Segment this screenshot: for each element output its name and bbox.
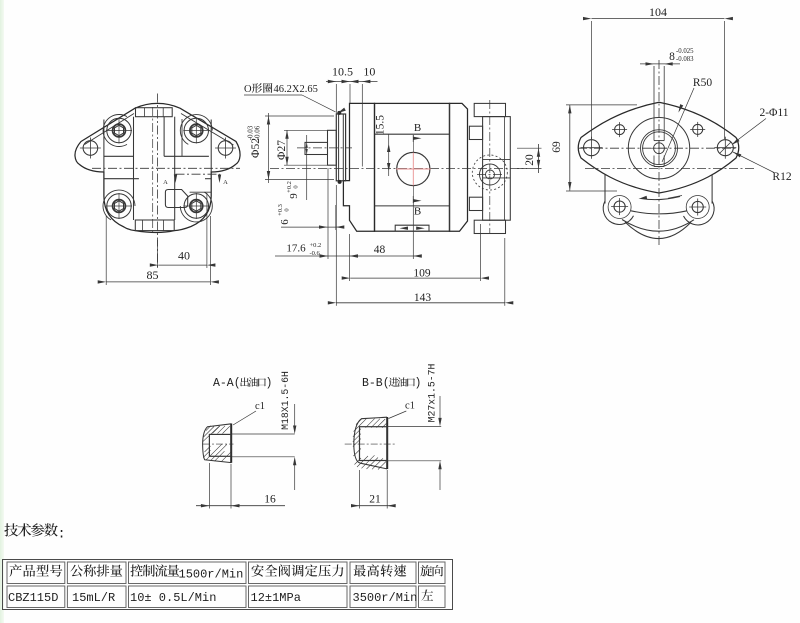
svg-text:M27x1.5-7H: M27x1.5-7H: [427, 363, 438, 422]
svg-text:2-Φ11: 2-Φ11: [759, 107, 788, 119]
svg-text:c1: c1: [255, 401, 265, 412]
svg-text:R50: R50: [693, 77, 712, 89]
svg-text:A-A(: A-A(: [213, 377, 241, 390]
svg-text:0: 0: [284, 208, 291, 211]
svg-text:R12: R12: [772, 171, 791, 183]
svg-text:17.6: 17.6: [286, 243, 306, 255]
svg-text:48: 48: [374, 244, 386, 256]
svg-text:M18X1.5-6H: M18X1.5-6H: [280, 371, 291, 430]
svg-text:-0.06: -0.06: [254, 125, 262, 140]
svg-text:A: A: [223, 179, 228, 186]
svg-text:104: 104: [649, 5, 667, 19]
svg-text:1500r/Min: 1500r/Min: [179, 568, 244, 582]
svg-text:85: 85: [147, 268, 159, 282]
svg-text:-0.025: -0.025: [676, 48, 694, 55]
svg-text:6: 6: [279, 219, 291, 225]
svg-text:20: 20: [524, 154, 536, 166]
svg-text:): ): [415, 377, 422, 390]
svg-text:B: B: [414, 206, 421, 218]
svg-text:46.2X2.65: 46.2X2.65: [274, 84, 318, 95]
svg-text:-0.083: -0.083: [676, 56, 694, 63]
svg-text:3500r/Min: 3500r/Min: [353, 591, 418, 605]
svg-text:15mL/R: 15mL/R: [72, 591, 115, 605]
svg-text:15.5: 15.5: [375, 115, 387, 135]
svg-text:143: 143: [414, 292, 432, 304]
svg-text:10.5: 10.5: [332, 65, 353, 79]
svg-text:12±1MPa: 12±1MPa: [251, 591, 301, 605]
svg-text:40: 40: [178, 249, 190, 263]
svg-text:69: 69: [551, 141, 563, 153]
svg-text:+0.2: +0.2: [310, 242, 322, 249]
svg-text:c1: c1: [405, 401, 415, 412]
svg-text:B-B(: B-B(: [362, 377, 390, 390]
svg-text:A: A: [163, 179, 168, 186]
svg-text:0: 0: [293, 185, 300, 188]
svg-text:21: 21: [369, 494, 381, 506]
svg-text:): ): [266, 377, 273, 390]
svg-text:10: 10: [363, 65, 375, 79]
svg-text:16: 16: [264, 494, 276, 506]
svg-text:10± 0.5L/Min: 10± 0.5L/Min: [130, 591, 216, 605]
svg-text::: :: [58, 528, 66, 543]
svg-text:B: B: [414, 122, 421, 134]
svg-text:CBZ115D: CBZ115D: [8, 591, 58, 605]
svg-text:8: 8: [669, 51, 675, 63]
svg-text:O: O: [244, 84, 252, 95]
